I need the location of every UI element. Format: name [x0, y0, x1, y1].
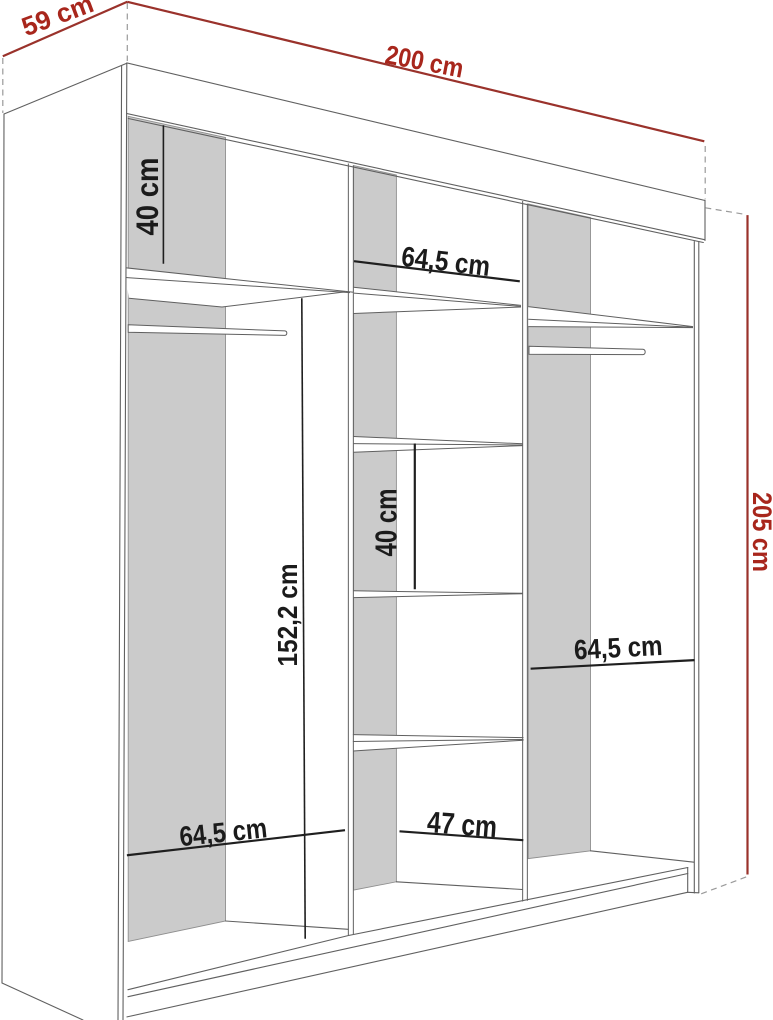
svg-text:205 cm: 205 cm — [747, 492, 773, 572]
svg-text:40 cm: 40 cm — [129, 158, 165, 236]
svg-text:152,2 cm: 152,2 cm — [272, 564, 303, 667]
svg-text:64,5 cm: 64,5 cm — [573, 630, 663, 666]
svg-text:40 cm: 40 cm — [369, 489, 404, 557]
svg-text:47 cm: 47 cm — [426, 806, 498, 844]
